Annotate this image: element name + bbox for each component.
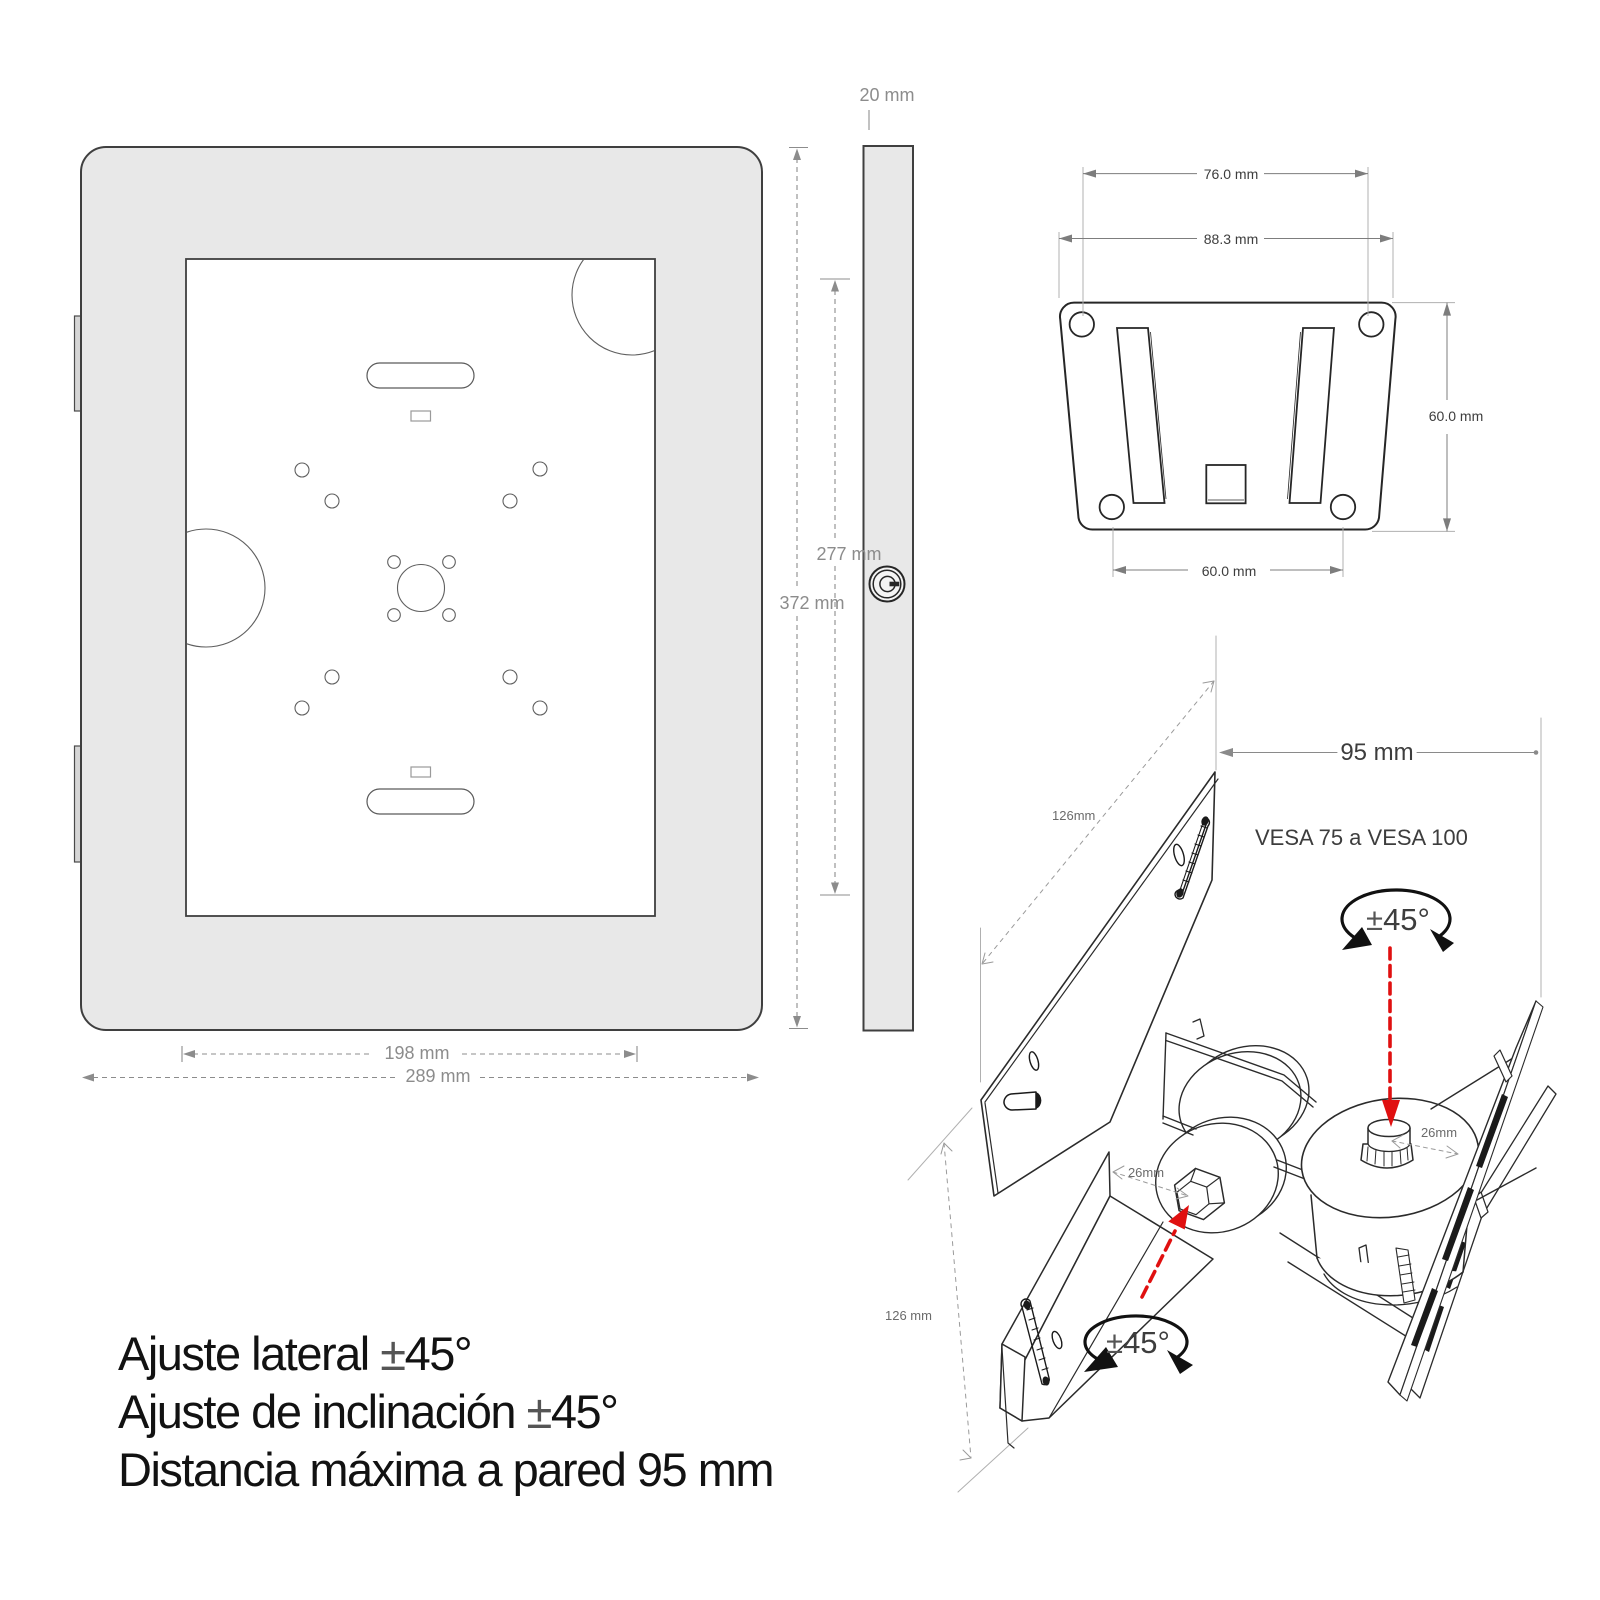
svg-text:126 mm: 126 mm bbox=[885, 1308, 932, 1323]
svg-text:277 mm: 277 mm bbox=[816, 544, 881, 564]
svg-text:126mm: 126mm bbox=[1052, 808, 1095, 823]
svg-text:±45°: ±45° bbox=[1106, 1325, 1170, 1360]
svg-text:26mm: 26mm bbox=[1128, 1165, 1164, 1180]
svg-text:Ajuste de inclinación ±45°: Ajuste de inclinación ±45° bbox=[118, 1385, 617, 1438]
svg-text:VESA 75 a VESA 100: VESA 75 a VESA 100 bbox=[1255, 825, 1468, 850]
svg-text:95 mm: 95 mm bbox=[1340, 739, 1413, 766]
svg-text:±45°: ±45° bbox=[1366, 902, 1430, 937]
svg-text:26mm: 26mm bbox=[1421, 1125, 1457, 1140]
svg-text:Ajuste lateral ±45°: Ajuste lateral ±45° bbox=[118, 1327, 471, 1380]
svg-text:Distancia máxima a pared 95 mm: Distancia máxima a pared 95 mm bbox=[118, 1443, 773, 1496]
svg-text:289 mm: 289 mm bbox=[405, 1066, 470, 1086]
svg-text:20 mm: 20 mm bbox=[859, 85, 914, 105]
svg-text:198 mm: 198 mm bbox=[384, 1043, 449, 1063]
svg-text:76.0 mm: 76.0 mm bbox=[1204, 166, 1258, 182]
svg-text:88.3 mm: 88.3 mm bbox=[1204, 231, 1258, 247]
svg-text:60.0 mm: 60.0 mm bbox=[1429, 408, 1483, 424]
svg-text:60.0 mm: 60.0 mm bbox=[1202, 563, 1256, 579]
